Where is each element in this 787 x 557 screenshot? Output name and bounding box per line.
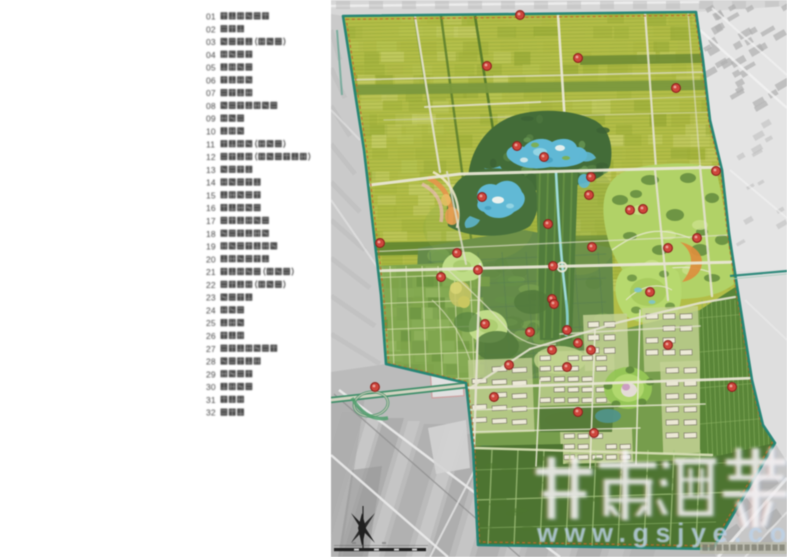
svg-text:19: 19 bbox=[206, 242, 216, 252]
svg-text:23: 23 bbox=[206, 293, 216, 303]
svg-text:31: 31 bbox=[206, 395, 216, 405]
svg-text:14: 14 bbox=[206, 178, 216, 188]
svg-text:12: 12 bbox=[206, 152, 216, 162]
svg-text:04: 04 bbox=[206, 50, 216, 60]
svg-text:11: 11 bbox=[206, 139, 215, 149]
svg-text:07: 07 bbox=[206, 88, 216, 98]
svg-text:20: 20 bbox=[206, 254, 216, 264]
svg-text:29: 29 bbox=[206, 369, 216, 379]
svg-text:16: 16 bbox=[206, 203, 216, 213]
svg-text:30: 30 bbox=[206, 382, 216, 392]
svg-text:02: 02 bbox=[206, 24, 216, 34]
svg-text:05: 05 bbox=[206, 63, 216, 73]
svg-text:28: 28 bbox=[206, 357, 216, 367]
svg-text:27: 27 bbox=[206, 344, 216, 354]
svg-text:22: 22 bbox=[206, 280, 216, 290]
svg-text:www.gsjye.co: www.gsjye.co bbox=[536, 518, 787, 548]
svg-text:15: 15 bbox=[206, 190, 216, 200]
svg-text:13: 13 bbox=[206, 165, 216, 175]
svg-text:21: 21 bbox=[206, 267, 216, 277]
svg-text:06: 06 bbox=[206, 75, 216, 85]
svg-text:08: 08 bbox=[206, 101, 216, 111]
svg-text:26: 26 bbox=[206, 331, 216, 341]
svg-text:32: 32 bbox=[206, 408, 216, 418]
svg-text:03: 03 bbox=[206, 37, 216, 47]
svg-text:17: 17 bbox=[206, 216, 216, 226]
svg-text:25: 25 bbox=[206, 318, 216, 328]
svg-text:10: 10 bbox=[206, 127, 216, 137]
svg-text:24: 24 bbox=[206, 305, 216, 315]
svg-text:09: 09 bbox=[206, 114, 216, 124]
svg-text:18: 18 bbox=[206, 229, 216, 239]
svg-text:01: 01 bbox=[206, 12, 216, 22]
